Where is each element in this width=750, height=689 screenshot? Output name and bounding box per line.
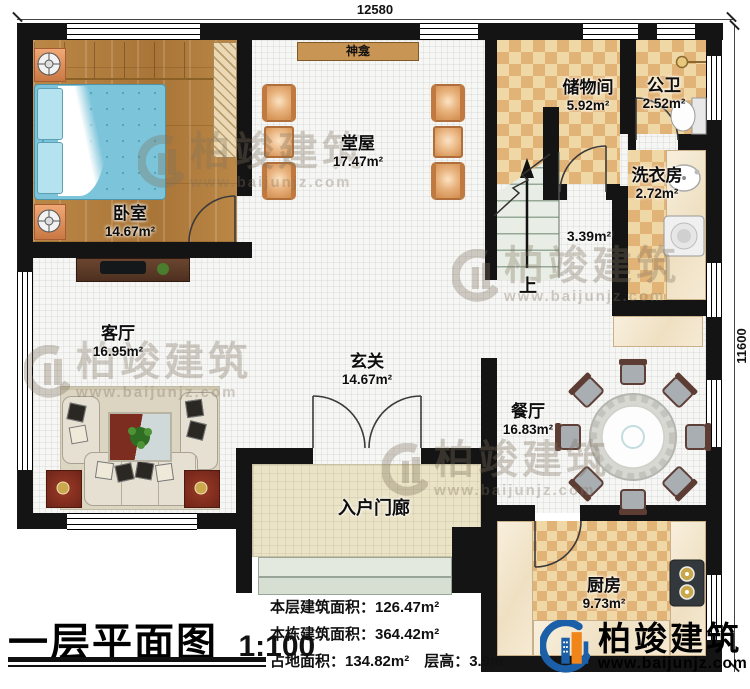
sofa-pillow (185, 399, 204, 418)
window (420, 23, 478, 40)
side-table (46, 470, 82, 508)
sofa-pillow (135, 461, 155, 481)
wall (485, 40, 497, 280)
wall (452, 527, 481, 593)
porch-step (258, 557, 452, 577)
wall (237, 40, 252, 196)
hall-chair (431, 84, 465, 122)
title-underline (8, 657, 266, 662)
wall (236, 448, 252, 593)
floor-plan-canvas: 12580 11600 神龛 (0, 0, 750, 689)
room-label-storage: 储物间5.92m² (563, 78, 614, 113)
stairs-area-label: 3.39m² (567, 228, 611, 244)
room-label-bedroom: 卧室14.67m² (105, 204, 155, 239)
wall (559, 184, 567, 200)
bed-pillow (37, 88, 63, 140)
stat-line: 本栋建筑面积：364.42m² (270, 621, 503, 648)
wall (628, 134, 636, 150)
stat-line: 占地面积：134.82m² 层高：3.9m (270, 648, 503, 675)
sofa-pillow (69, 425, 89, 445)
dining-sideboard (613, 316, 703, 347)
title-underline (8, 665, 266, 667)
dimension-tick (12, 12, 23, 23)
sofa-pillow (95, 461, 114, 480)
wall (543, 107, 559, 200)
window (67, 23, 200, 40)
dimension-top-label: 12580 (340, 2, 410, 17)
area-stats: 本层建筑面积：126.47m² 本栋建筑面积：364.42m² 占地面积：134… (270, 594, 503, 675)
window (67, 513, 197, 530)
porch-step (258, 577, 452, 595)
room-label-kitchen: 厨房9.73m² (583, 576, 626, 611)
nightstand (34, 48, 66, 82)
coffee-table (108, 412, 172, 462)
hall-chair (431, 162, 465, 200)
shrine-shelf: 神龛 (297, 42, 419, 61)
wardrobe (213, 42, 237, 158)
window (706, 56, 722, 120)
room-label-foyer: 玄关14.67m² (342, 352, 392, 387)
sofa-pillow (114, 462, 134, 482)
stat-line: 本层建筑面积：126.47m² (270, 594, 503, 621)
wall (612, 300, 706, 316)
hall-chair (262, 84, 296, 122)
dimension-top-line (17, 19, 734, 20)
dimension-right-label: 11600 (734, 320, 750, 372)
tv (100, 261, 146, 274)
stairs-up-label: 上 (519, 276, 537, 297)
room-label-porch: 入户门廊 (338, 498, 410, 519)
wall (620, 40, 636, 134)
wall (612, 186, 628, 316)
wall (252, 448, 313, 464)
wall (497, 505, 535, 521)
hall-tea-table (433, 126, 463, 158)
room-label-laundry: 洗衣房2.72m² (632, 166, 683, 201)
window (17, 272, 33, 470)
brand-name: 柏竣建筑 (598, 622, 748, 655)
room-label-hall: 堂屋17.47m² (333, 134, 383, 169)
window (583, 23, 638, 40)
room-label-bathroom: 公卫2.52m² (643, 76, 686, 111)
window (657, 23, 695, 40)
hall-tea-table (264, 126, 294, 158)
window (706, 380, 722, 447)
bed-pillow (37, 142, 63, 194)
brand-url: www.baijunjz.com (598, 655, 748, 673)
shrine-label: 神龛 (346, 44, 370, 58)
sofa-pillow (155, 463, 174, 482)
brand-logo: 柏竣建筑 www.baijunjz.com (540, 620, 748, 674)
sofa-pillow (66, 402, 86, 422)
wall (580, 505, 706, 521)
hall-chair (262, 162, 296, 200)
room-label-dining: 餐厅16.83m² (503, 402, 553, 437)
window (706, 263, 722, 317)
wall (33, 242, 252, 258)
brand-logo-icon (540, 620, 592, 674)
room-label-living: 客厅16.95m² (93, 324, 143, 359)
side-table (184, 470, 220, 508)
nightstand (34, 204, 66, 240)
wall (678, 134, 706, 150)
wall (421, 448, 481, 464)
